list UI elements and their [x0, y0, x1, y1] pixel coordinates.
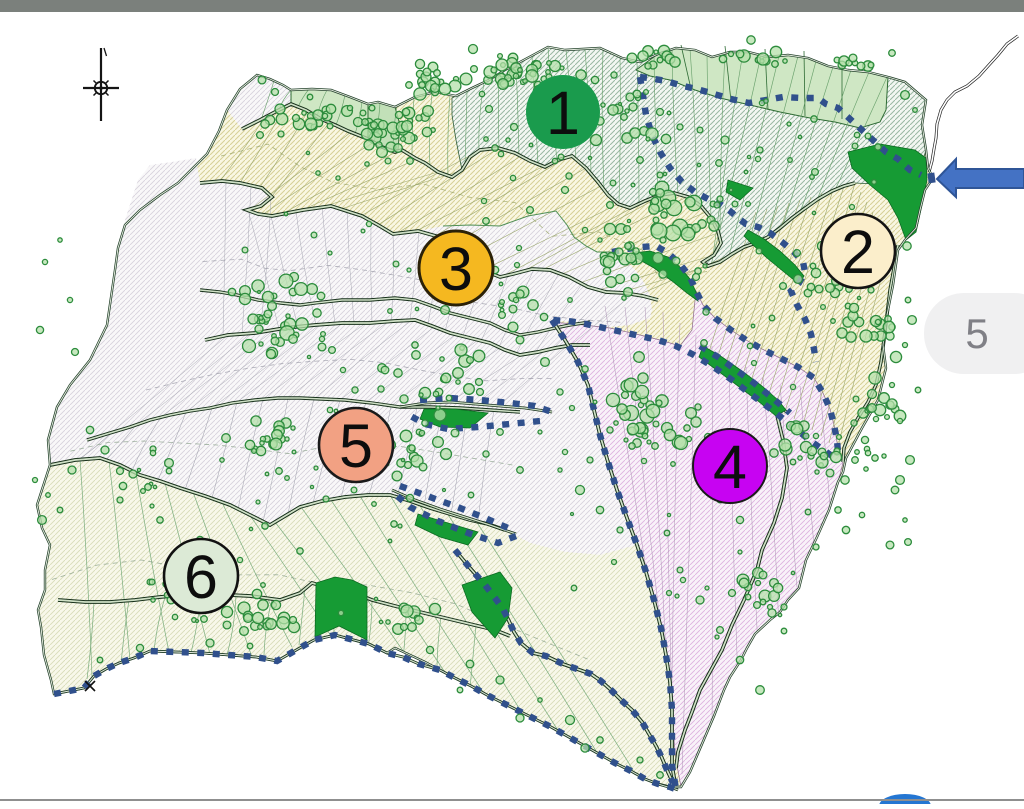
svg-text:4: 4	[713, 433, 747, 501]
svg-text:5: 5	[965, 310, 988, 357]
svg-text:5: 5	[339, 412, 373, 480]
svg-text:6: 6	[184, 543, 218, 611]
svg-text:1: 1	[546, 79, 580, 147]
svg-text:3: 3	[439, 235, 473, 303]
svg-text:2: 2	[841, 218, 875, 286]
